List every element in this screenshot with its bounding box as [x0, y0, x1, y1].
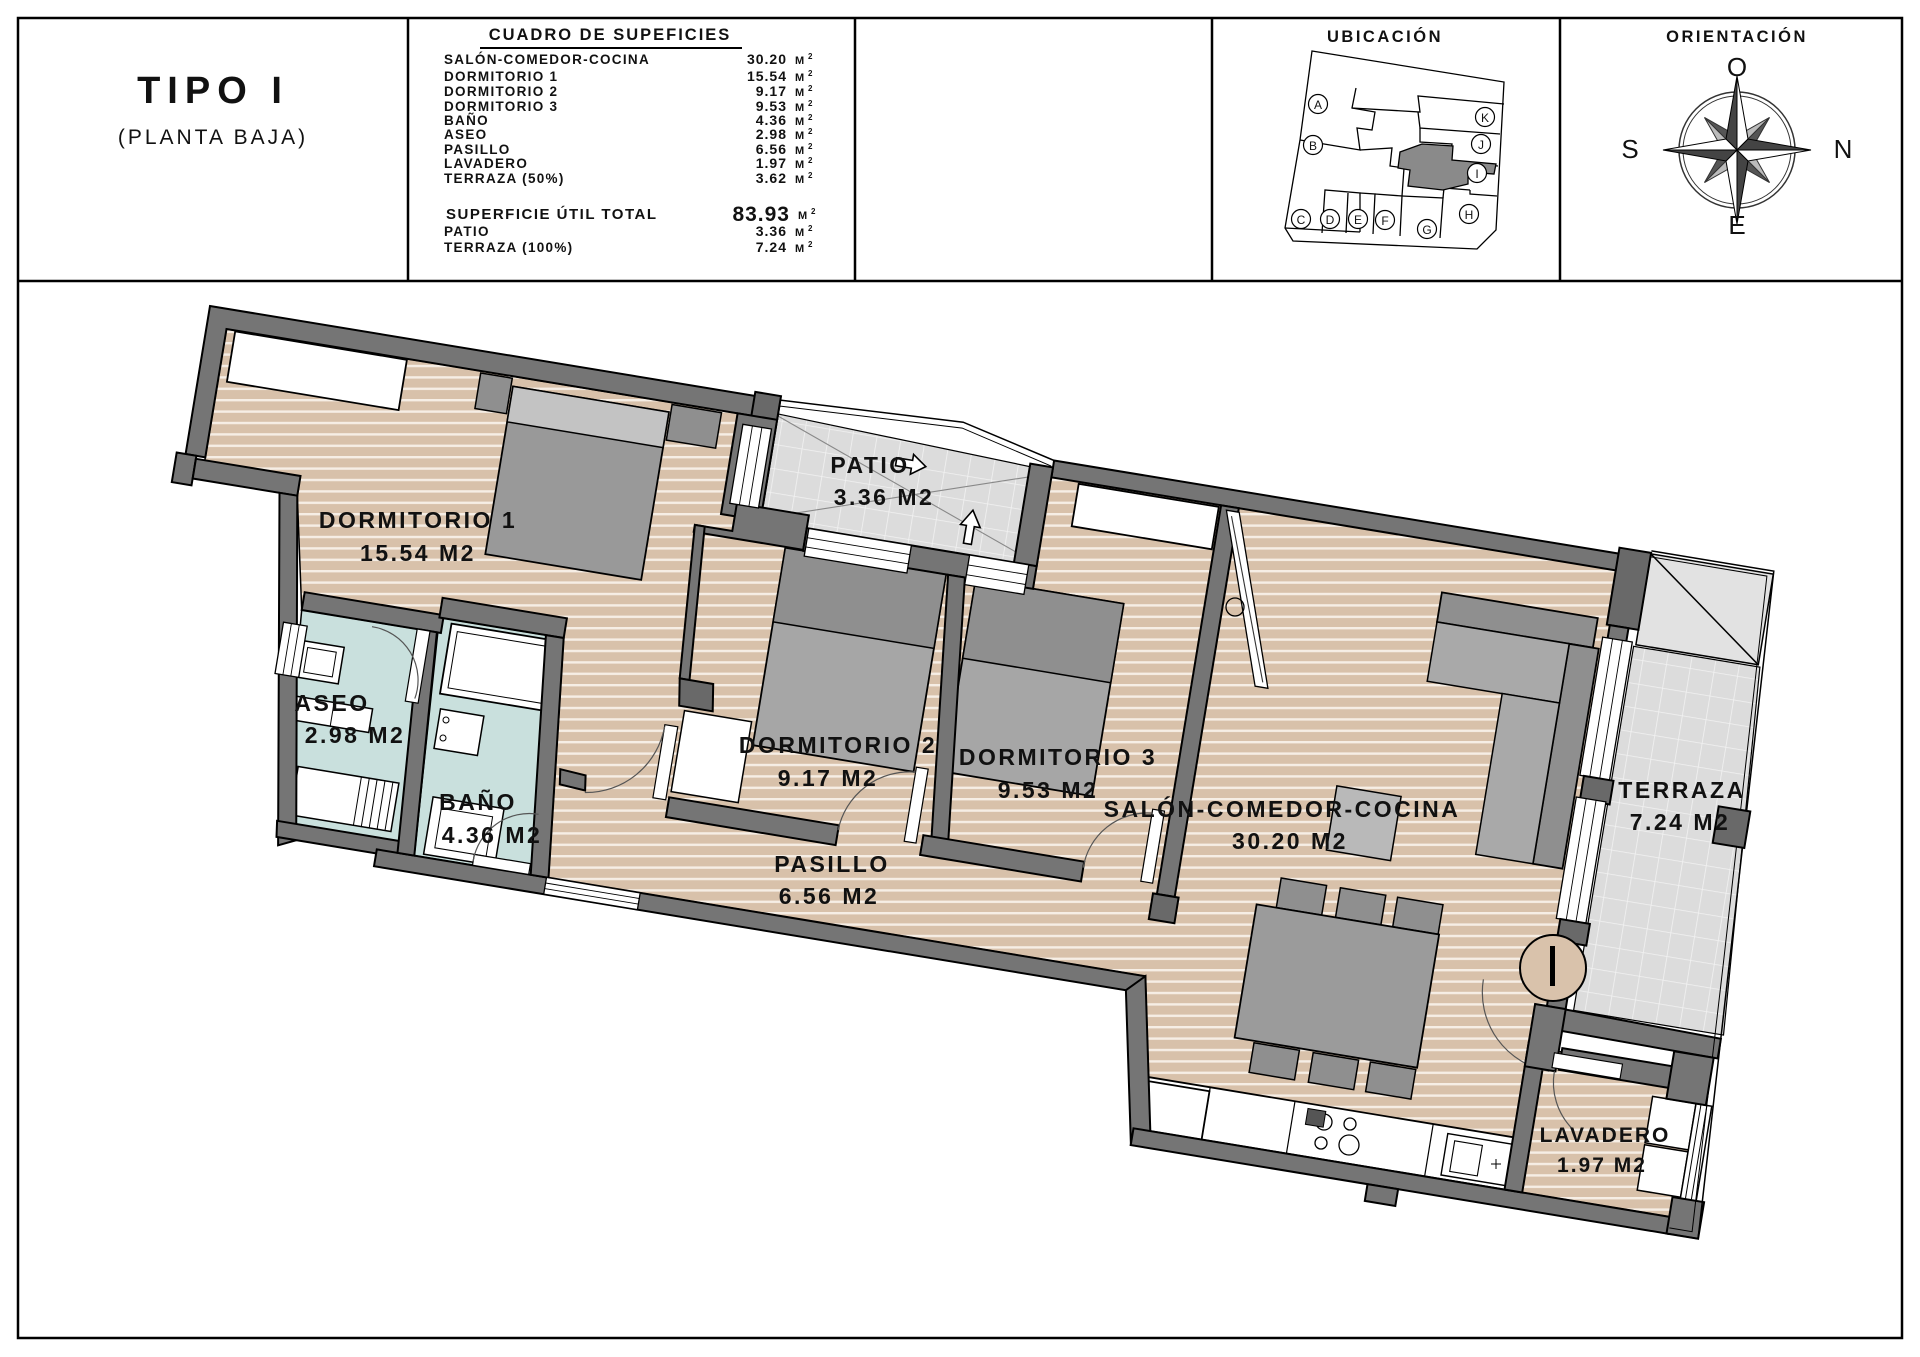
svg-text:H: H	[1465, 208, 1474, 222]
svg-text:2: 2	[808, 69, 813, 78]
svg-text:2: 2	[808, 127, 813, 136]
svg-text:2: 2	[808, 142, 813, 151]
svg-text:DORMITORIO 3: DORMITORIO 3	[444, 99, 558, 114]
svg-text:M: M	[795, 72, 804, 84]
svg-text:TERRAZA: TERRAZA	[1618, 777, 1745, 803]
svg-text:M: M	[795, 174, 804, 186]
svg-text:M: M	[795, 130, 804, 142]
svg-text:DORMITORIO 2: DORMITORIO 2	[444, 84, 558, 99]
svg-text:ASEO: ASEO	[294, 690, 369, 716]
svg-text:7.24: 7.24	[756, 239, 787, 255]
svg-text:M: M	[795, 159, 804, 171]
svg-text:2: 2	[808, 113, 813, 122]
svg-text:PASILLO: PASILLO	[774, 851, 889, 877]
svg-text:9.17: 9.17	[756, 83, 787, 99]
svg-text:9.17 M2: 9.17 M2	[778, 765, 879, 791]
svg-text:E: E	[1728, 210, 1745, 240]
svg-text:D: D	[1326, 213, 1335, 227]
svg-text:2: 2	[811, 207, 816, 216]
svg-text:E: E	[1354, 213, 1362, 227]
svg-text:2: 2	[808, 52, 813, 61]
svg-text:1.97 M2: 1.97 M2	[1557, 1154, 1647, 1177]
svg-text:2: 2	[808, 156, 813, 165]
svg-text:(PLANTA BAJA): (PLANTA BAJA)	[118, 126, 308, 149]
svg-text:3.36 M2: 3.36 M2	[834, 484, 935, 510]
svg-text:TERRAZA (100%): TERRAZA (100%)	[444, 240, 573, 255]
svg-text:2.98: 2.98	[756, 126, 787, 142]
svg-text:2: 2	[808, 171, 813, 180]
svg-text:S: S	[1621, 134, 1638, 164]
svg-text:LAVADERO: LAVADERO	[1540, 1124, 1671, 1147]
svg-text:ASEO: ASEO	[444, 127, 487, 142]
svg-text:UBICACIÓN: UBICACIÓN	[1327, 27, 1443, 46]
svg-text:2: 2	[808, 224, 813, 233]
svg-text:30.20 M2: 30.20 M2	[1232, 828, 1348, 854]
svg-text:LAVADERO: LAVADERO	[444, 156, 528, 171]
svg-text:SUPERFICIE ÚTIL TOTAL: SUPERFICIE ÚTIL TOTAL	[446, 205, 658, 223]
svg-text:6.56 M2: 6.56 M2	[779, 883, 880, 909]
svg-text:DORMITORIO 3: DORMITORIO 3	[959, 744, 1157, 770]
svg-text:7.24 M2: 7.24 M2	[1630, 809, 1731, 835]
svg-text:M: M	[795, 102, 804, 114]
svg-text:ORIENTACIÓN: ORIENTACIÓN	[1666, 27, 1808, 46]
svg-text:M: M	[795, 116, 804, 128]
svg-text:M: M	[795, 145, 804, 157]
svg-text:TIPO I: TIPO I	[137, 70, 289, 112]
svg-text:PASILLO: PASILLO	[444, 142, 511, 157]
svg-text:PATIO: PATIO	[830, 452, 909, 478]
svg-text:15.54: 15.54	[747, 68, 787, 84]
svg-text:2: 2	[808, 240, 813, 249]
svg-text:G: G	[1422, 223, 1431, 237]
svg-text:BAÑO: BAÑO	[439, 788, 517, 815]
svg-text:2.98 M2: 2.98 M2	[305, 722, 406, 748]
svg-text:4.36 M2: 4.36 M2	[442, 822, 543, 848]
svg-text:I: I	[1475, 167, 1478, 181]
svg-text:M: M	[798, 210, 807, 222]
svg-text:J: J	[1478, 138, 1484, 152]
svg-text:A: A	[1314, 98, 1322, 112]
svg-text:3.62: 3.62	[756, 170, 787, 186]
svg-text:F: F	[1381, 214, 1388, 228]
svg-text:M: M	[795, 87, 804, 99]
svg-text:3.36: 3.36	[756, 223, 787, 239]
svg-text:C: C	[1297, 213, 1306, 227]
svg-text:DORMITORIO 1: DORMITORIO 1	[444, 69, 558, 84]
svg-text:TERRAZA (50%): TERRAZA (50%)	[444, 171, 565, 186]
svg-text:SALÓN-COMEDOR-COCINA: SALÓN-COMEDOR-COCINA	[444, 52, 650, 67]
svg-text:30.20: 30.20	[747, 51, 787, 67]
svg-text:9.53 M2: 9.53 M2	[998, 777, 1099, 803]
svg-text:PATIO: PATIO	[444, 224, 490, 239]
svg-text:N: N	[1834, 134, 1853, 164]
svg-text:SALÓN-COMEDOR-COCINA: SALÓN-COMEDOR-COCINA	[1104, 795, 1461, 822]
svg-text:1.97: 1.97	[756, 155, 787, 171]
svg-text:B: B	[1309, 139, 1317, 153]
svg-text:M: M	[795, 55, 804, 67]
svg-text:DORMITORIO 2: DORMITORIO 2	[739, 732, 937, 758]
svg-text:O: O	[1727, 52, 1747, 82]
svg-text:DORMITORIO 1: DORMITORIO 1	[319, 507, 517, 533]
svg-text:CUADRO DE SUPEFICIES: CUADRO DE SUPEFICIES	[489, 26, 732, 44]
svg-text:M: M	[795, 243, 804, 255]
svg-text:K: K	[1481, 111, 1489, 125]
svg-text:2: 2	[808, 99, 813, 108]
svg-text:15.54 M2: 15.54 M2	[360, 540, 476, 566]
svg-text:BAÑO: BAÑO	[444, 113, 489, 128]
svg-text:2: 2	[808, 84, 813, 93]
svg-text:M: M	[795, 227, 804, 239]
